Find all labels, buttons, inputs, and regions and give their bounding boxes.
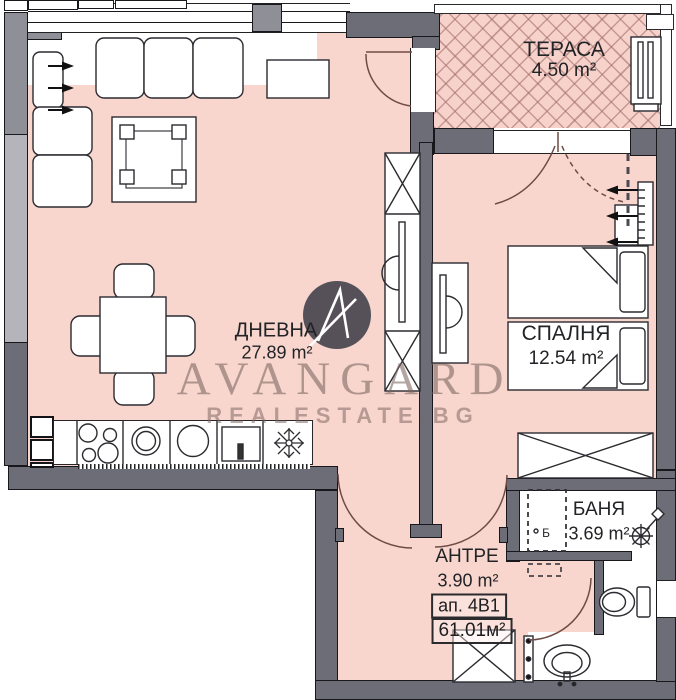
boiler-marker: Б bbox=[542, 526, 550, 540]
living-room-window-strip bbox=[28, 33, 350, 85]
wall-segment bbox=[434, 128, 494, 154]
wall-segment bbox=[656, 128, 676, 470]
living-room-floor-upper bbox=[317, 33, 420, 89]
kitchen-cabinet bbox=[30, 462, 54, 468]
hall-label: АНТРЕ bbox=[435, 546, 498, 568]
wall-column bbox=[252, 4, 282, 32]
wall-segment bbox=[4, 12, 28, 136]
wall-segment bbox=[8, 466, 338, 490]
wall-segment bbox=[315, 680, 676, 700]
bathroom-area: 3.69 m² bbox=[568, 524, 629, 545]
living-area: 27.89 m² bbox=[241, 343, 312, 364]
wall-segment bbox=[499, 527, 508, 543]
terrace-railing-corner bbox=[646, 14, 674, 30]
floor-plan: AVANGARD REALESTATE.BG ТЕРАСА 4.50 m² ДН… bbox=[0, 0, 676, 700]
window bbox=[657, 580, 676, 618]
wc-floor-bottom bbox=[528, 632, 656, 682]
wall-segment bbox=[4, 134, 28, 344]
wall-segment bbox=[656, 470, 676, 682]
bedroom-area: 12.54 m² bbox=[529, 348, 604, 370]
wall-notch bbox=[115, 0, 187, 9]
terrace-railing-top bbox=[434, 4, 670, 14]
hall-area: 3.90 m² bbox=[437, 571, 498, 592]
wall-segment bbox=[594, 560, 604, 635]
wall-notch bbox=[78, 0, 114, 9]
kitchen-cabinet bbox=[30, 416, 54, 438]
bedroom-floor bbox=[432, 152, 656, 478]
wall-segment bbox=[346, 12, 440, 38]
wall-segment bbox=[315, 490, 338, 682]
wall-segment bbox=[506, 478, 676, 491]
terrace-label: ТЕРАСА bbox=[523, 38, 605, 62]
bedroom-label: СПАЛНЯ bbox=[522, 322, 611, 346]
bedroom-window-opening bbox=[494, 130, 630, 154]
wall-divider bbox=[419, 142, 433, 526]
terrace-door-opening bbox=[410, 48, 436, 112]
watermark-brand: AVANGARD bbox=[177, 352, 514, 406]
window-line bbox=[28, 22, 350, 23]
apartment-total-area: 61.01м² bbox=[432, 618, 513, 644]
kitchen-counter-edge bbox=[78, 464, 310, 469]
wall-segment bbox=[4, 342, 28, 466]
terrace-area: 4.50 m² bbox=[532, 60, 596, 82]
wall-notch bbox=[28, 0, 78, 10]
wall-divider-cap bbox=[410, 524, 442, 538]
apartment-number: ап. 4В1 bbox=[431, 594, 507, 619]
watermark-site: REALESTATE.BG bbox=[206, 403, 480, 429]
kitchen-cabinet bbox=[30, 439, 54, 461]
wall-segment bbox=[506, 551, 632, 561]
window-line bbox=[28, 11, 350, 12]
wall-segment bbox=[335, 528, 344, 542]
bathroom-label: БАНЯ bbox=[573, 499, 625, 521]
wall-notch bbox=[4, 0, 28, 11]
living-label: ДНЕВНА bbox=[235, 320, 317, 343]
